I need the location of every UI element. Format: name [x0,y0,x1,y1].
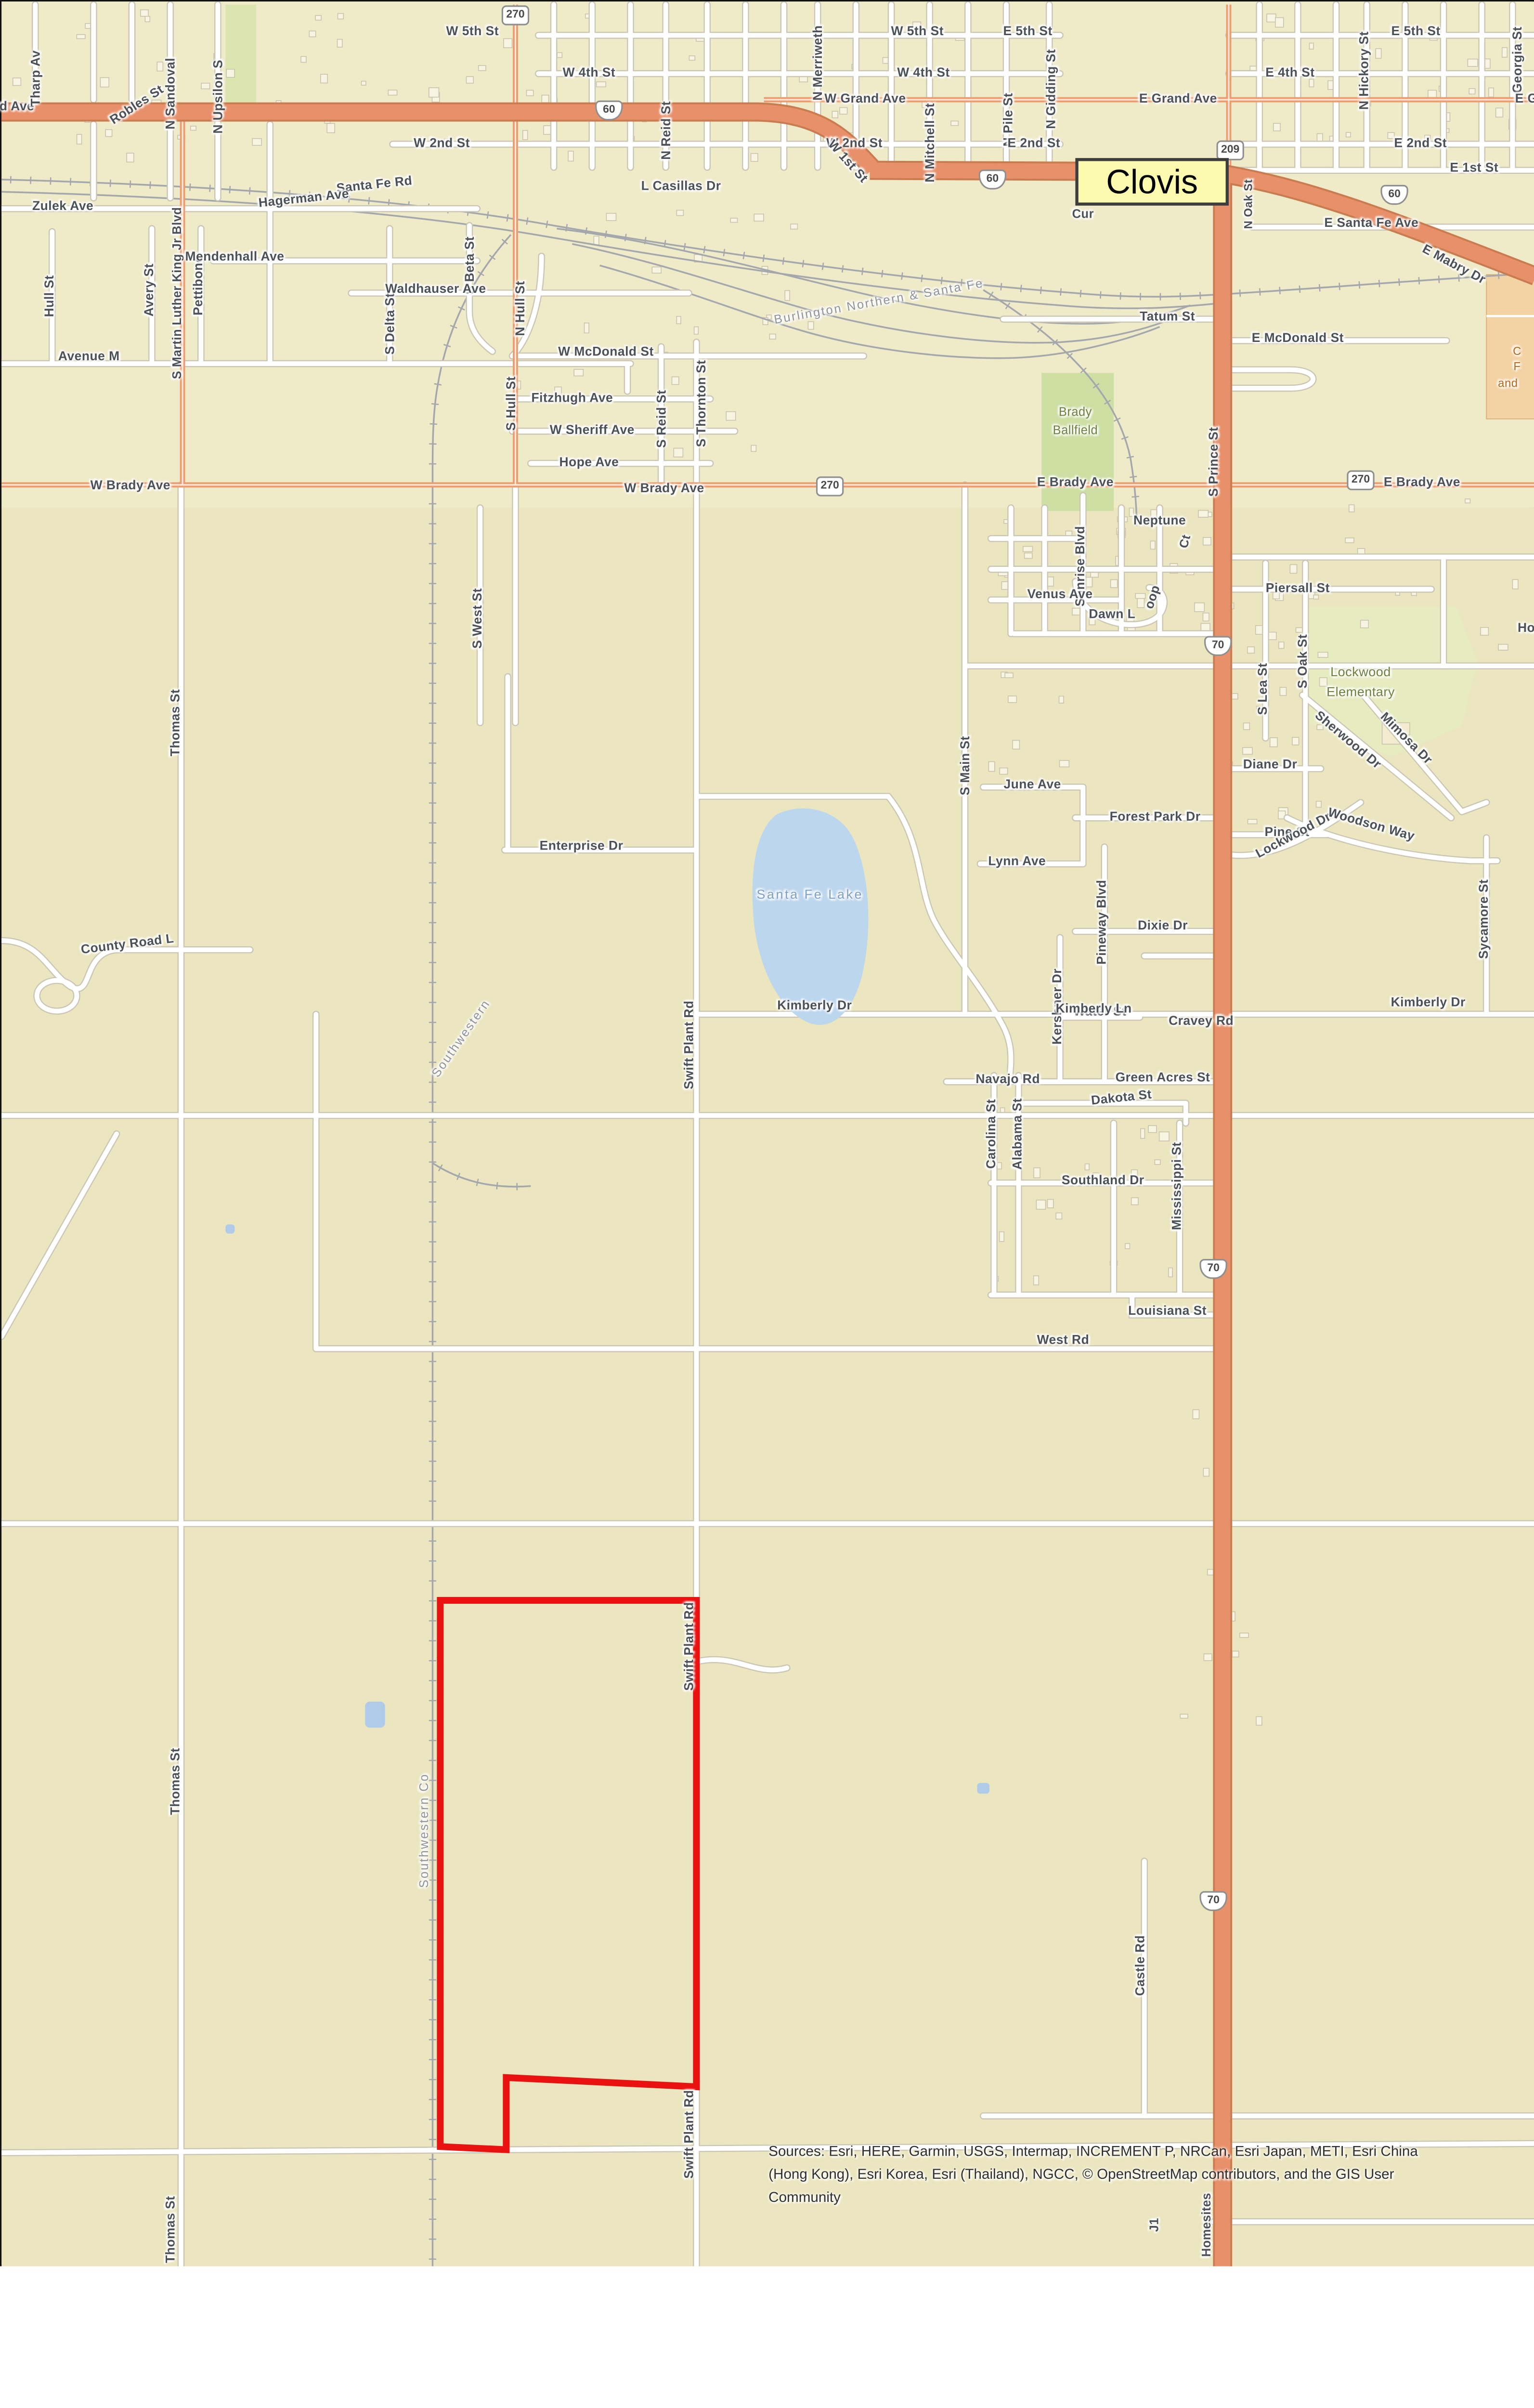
map-label: L Casillas Dr [641,179,721,192]
map-label: E 1st St [1450,161,1498,173]
map-label: Louisiana St [1128,1304,1207,1317]
route-shield-270: 270 [502,5,529,25]
map-label: Sycamore St [1477,879,1490,959]
map-label: Lynn Ave [988,854,1046,867]
map-label: E McDonald St [1252,331,1344,344]
map-label: S Lea St [1256,663,1269,715]
pond [365,1701,385,1727]
map-label: Dawn L [1089,607,1135,620]
map-label: W Sheriff Ave [550,423,635,436]
map-label: Thomas St [169,1748,181,1815]
map-label: C [1513,346,1521,357]
map-label: W Grand Ave [824,92,906,105]
map-label: Ballfield [1053,425,1098,437]
map-label: N Merriweth [811,25,824,101]
map-label: S Oak St [1296,634,1309,689]
map-label: Avenue M [58,350,120,362]
map-label: Tatum St [1140,310,1195,322]
city-label: Clovis [1106,163,1198,201]
map-label: S Thornton St [695,360,707,447]
map-label: W 4th St [563,66,616,79]
footer: 263+/- Acres Curry County, NM Clift Land… [0,2266,1534,2408]
map-label: E 5th St [1003,25,1052,37]
map-label: Lockwood [1330,666,1391,679]
map-label: S Hull St [505,376,517,431]
map-label: F [1513,361,1521,373]
map-label: S West St [471,588,483,649]
map-label: E Grand Ave [1139,92,1217,105]
map-label: W Brady Ave [624,482,704,494]
map-label: E 2nd St [1008,136,1061,149]
map-label: Castle Rd [1133,1935,1146,1996]
map-label: Venus Ave [1027,588,1093,600]
map-label: E Brady Ave [1037,475,1114,488]
map-label: N Gidding St [1044,49,1057,129]
map-label: Alabama St [1011,1098,1023,1170]
map-label: Mendenhall Ave [185,250,284,262]
map-canvas[interactable]: d AveW 5th StW 4th StW 2nd StRobles StTh… [0,0,1534,2266]
map-label: W 4th St [897,66,950,79]
map-label: N Reid St [660,101,672,160]
map-label: E 4th St [1265,66,1314,79]
map-label: E Santa Fe Ave [1324,216,1418,229]
map-label: Hull St [43,275,55,317]
map-label: Forest Park Dr [1110,810,1201,823]
map-label: E Brady Ave [1384,475,1460,488]
map-label: S Reid St [655,390,667,448]
map-label: W 2nd St [414,136,470,149]
map-label: Ho [1518,621,1534,634]
map-label: J1 [1149,2218,1161,2232]
map-label: W 5th St [891,25,944,37]
map-label: Brady [1059,406,1092,419]
map-label: Southwestern Co [419,1773,431,1888]
map-label: Southland Dr [1062,1174,1144,1186]
map-label: Navajo Rd [975,1073,1040,1085]
map-label: E G [1515,92,1534,105]
map-label: S Martin Luther King Jr Blvd [172,207,184,380]
map-label: E 2nd St [1394,136,1447,149]
map-label: Waldhauser Ave [385,282,486,295]
map-label: Elementary [1326,685,1395,698]
map-label: Cravey Rd [1169,1014,1234,1026]
pond-tiny [225,1224,234,1233]
map-label: S Main St [959,736,971,795]
map-label: S Delta St [383,293,396,354]
map-label: Diane Dr [1243,758,1298,770]
map-label: N Upsilon S [211,60,224,134]
map-label: Kimberly Ln [1056,1002,1132,1014]
attribution-text: Sources: Esri, HERE, Garmin, USGS, Inter… [768,2140,1489,2209]
map-label: N Mitchell St [923,103,936,183]
map-label: N Hickory St [1357,31,1370,110]
map-label: Kimberly Dr [777,999,852,1011]
map-label: Zulek Ave [32,199,93,212]
map-label: Carolina St [985,1099,997,1169]
map-label: Dixie Dr [1138,919,1188,931]
map-label: W McDonald St [558,345,654,357]
map-label: N Sandoval [164,58,176,130]
map-label: Avery St [143,263,155,316]
map-label: E 5th St [1391,25,1441,37]
map-label: Hope Ave [559,456,619,468]
map-label: N Hull St [514,281,526,336]
map-label: S Prince St [1207,427,1220,497]
map-label: June Ave [1003,778,1061,790]
map-label: Piersall St [1266,581,1330,594]
map-label: N Oak St [1243,179,1254,229]
pond-small [977,1783,989,1793]
route-shield-209: 209 [1216,141,1244,160]
route-shield-270: 270 [1347,471,1374,490]
map-label: Santa Fe Lake [756,888,863,901]
map-label: W 5th St [446,25,499,37]
city-label-box: Clovis [1075,158,1229,206]
map-label: Swift Plant Rd [682,2090,695,2179]
map-label: Swift Plant Rd [682,1000,695,1089]
map-label: West Rd [1037,1333,1090,1346]
map-label: Thomas St [164,2196,176,2263]
map-label: Tharp Av [29,50,41,106]
route-shield-270: 270 [816,476,844,496]
brady-ballfield-area [1041,373,1114,511]
map-label: W Brady Ave [91,479,170,491]
map-label: Pineway Blvd [1095,880,1107,965]
map-label: Thomas St [169,689,181,756]
map-label: Mississippi St [1170,1142,1183,1230]
map-label: Kimberly Dr [1391,995,1466,1008]
page: d AveW 5th StW 4th StW 2nd StRobles StTh… [0,0,1534,2408]
park-area [225,5,256,103]
fairgrounds-area [1486,275,1534,419]
map-label: and [1498,378,1518,390]
map-label: Fitzhugh Ave [532,391,613,404]
map-label: Georgia St [1511,26,1523,93]
map-label: Swift Plant Rd [682,1602,695,1690]
map-label: Pettibone [192,255,204,315]
map-label: Neptune [1133,514,1186,526]
stage: d AveW 5th StW 4th StW 2nd StRobles StTh… [0,0,1534,2408]
map-label: Enterprise Dr [540,839,624,851]
map-label: Cur [1072,209,1094,221]
map-label: Green Acres St [1116,1071,1210,1083]
